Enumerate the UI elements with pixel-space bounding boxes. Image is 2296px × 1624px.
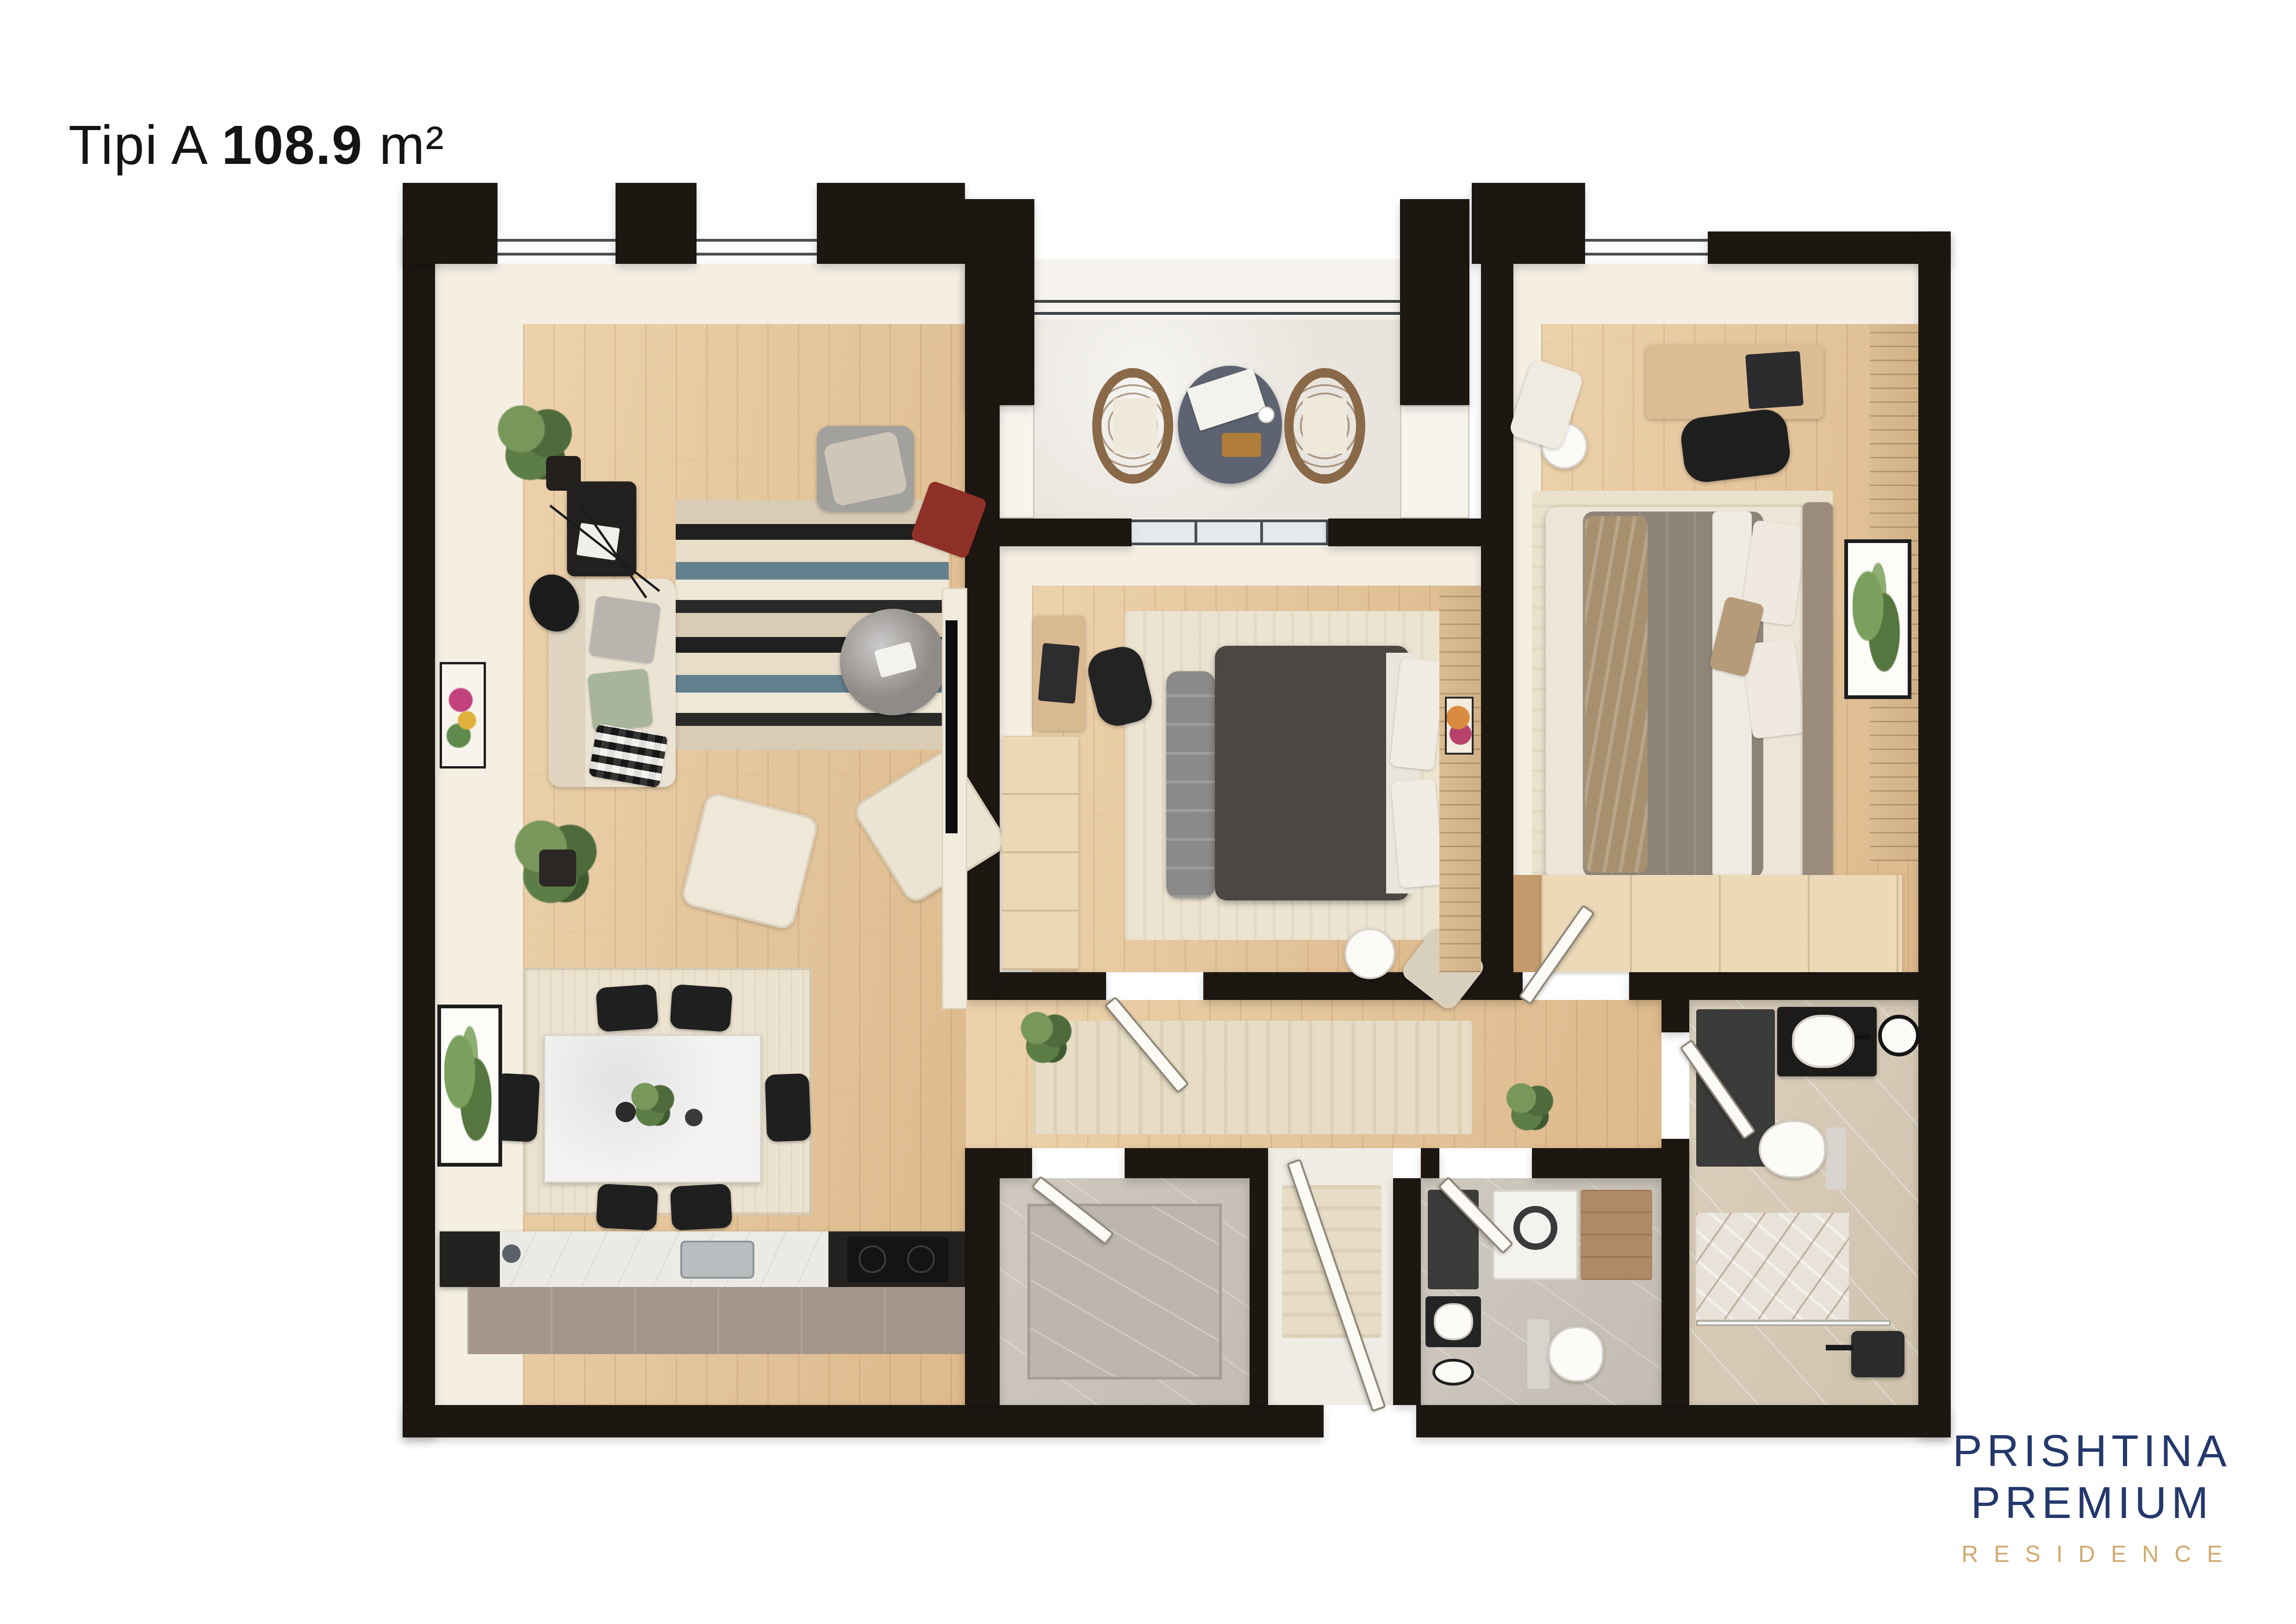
balcony-tray: [1222, 433, 1261, 457]
kitchen-sink: [680, 1241, 754, 1279]
wall-bedroom1-north-b: [1328, 518, 1481, 546]
balcony-railing: [1034, 300, 1400, 316]
sofa-pillow-gray: [589, 595, 661, 664]
kitchen-bottle: [502, 1244, 521, 1263]
bedroom1-slat-wall: [1439, 586, 1481, 972]
wall-top-block-2: [616, 183, 697, 264]
bedroom2-headboard: [1803, 502, 1833, 887]
kitchen-counter-marble: [500, 1231, 828, 1287]
wall-bedroom1-bedroom2: [1481, 264, 1513, 972]
wall-pantry-corridor: [1250, 1148, 1268, 1405]
shower-glass-screen: [1696, 1320, 1891, 1326]
title-unit: m²: [379, 114, 445, 175]
bath-sink: [1792, 1015, 1854, 1068]
brand-tagline: RESIDENCE: [1937, 1541, 2247, 1568]
wall-bedroom1-north-a: [1000, 518, 1132, 546]
wall-bedrooms-south-a: [1000, 972, 1106, 1000]
bedroom2-art-monstera: [1853, 553, 1904, 685]
wall-outer-left: [403, 231, 435, 1437]
balcony-pillar-right: [1400, 199, 1469, 405]
wall-hall-south-a: [1000, 1148, 1032, 1178]
bedroom1-small-art: [1445, 697, 1474, 755]
wall-living-bedroom1: [965, 264, 1000, 1000]
balcony-chair-left-cushion: [1113, 398, 1157, 454]
window-bedroom2: [1585, 231, 1708, 264]
brand-line-2: PREMIUM: [1937, 1477, 2247, 1529]
dining-vase-2: [685, 1109, 703, 1126]
wall-hall-south-b: [1125, 1148, 1250, 1178]
dining-chair-4: [670, 1184, 733, 1231]
brand-logo: PRISHTINA PREMIUM RESIDENCE: [1937, 1425, 2247, 1568]
wc-toilet-bowl: [1548, 1326, 1604, 1382]
wc-toilet-tank: [1527, 1319, 1549, 1389]
dining-chair-1: [596, 984, 659, 1032]
bedroom2-desk-chair: [1679, 407, 1792, 485]
glass-door-balcony-bedroom1: [1132, 519, 1328, 545]
cooktop-burner-2: [907, 1245, 935, 1273]
shower-head: [1851, 1331, 1904, 1377]
wall-top-block-4: [1472, 183, 1585, 264]
wall-hall-south-d: [1532, 1148, 1661, 1178]
wall-bedrooms-south-c: [1629, 972, 1918, 1000]
window-living-1: [498, 231, 616, 264]
bedroom1-laptop: [1038, 643, 1080, 704]
wall-corridor-wc: [1393, 1178, 1421, 1405]
living-wall-face-top: [523, 264, 965, 324]
bedroom2-sheet-fold: [1712, 512, 1752, 877]
bedroom1-wardrobe: [1002, 736, 1078, 970]
washing-machine-door: [1513, 1206, 1557, 1250]
balcony-parapet-right: [1400, 405, 1469, 518]
bath-faucet: [1855, 1035, 1871, 1039]
floorplan-sheet: Tipi A 108.9 m²: [0, 0, 2296, 1624]
dining-vase-1: [616, 1102, 636, 1122]
pantry-interior: [1027, 1204, 1222, 1380]
window-living-2: [697, 231, 817, 264]
kitchen-cabinets: [467, 1287, 965, 1354]
wall-bottom-left: [403, 1405, 1324, 1437]
hallway-runner-rug: [1032, 1021, 1472, 1134]
dining-centerpiece: [627, 1079, 678, 1130]
tv-screen: [946, 620, 958, 833]
balcony-coffee-cup: [1258, 406, 1275, 423]
bedroom2-laptop: [1745, 351, 1804, 409]
wall-outer-right: [1918, 231, 1951, 1437]
dining-chair-3: [596, 1184, 659, 1231]
bedroom1-wall-face-top: [1000, 546, 1481, 586]
bath-toilet-bowl: [1759, 1120, 1826, 1178]
wall-hall-south-c: [1421, 1148, 1439, 1178]
wall-wc-bath-b: [1661, 1139, 1689, 1405]
hallway-plant-2: [1502, 1079, 1557, 1134]
bath-mirror: [1878, 1015, 1920, 1056]
wall-top-right: [1708, 231, 1951, 264]
wall-bottom-right: [1416, 1405, 1951, 1437]
sofa-pillow-green: [587, 668, 653, 732]
page-title: Tipi A 108.9 m²: [68, 113, 445, 176]
plant-pot-bottom: [539, 849, 576, 887]
bedroom1-bed-duvet: [1215, 646, 1409, 900]
balcony-chair-right-cushion: [1303, 398, 1347, 454]
bedroom2-wardrobe: [1541, 875, 1902, 972]
wall-kitchen-side: [965, 1148, 1000, 1405]
bedroom1-side-table: [1344, 928, 1395, 979]
bedroom1-pillow-2: [1391, 778, 1444, 888]
wc-wood-cabinet: [1580, 1190, 1652, 1280]
wall-top-block-3: [817, 183, 965, 264]
title-area: 108.9: [222, 114, 363, 175]
dining-chair-2: [670, 984, 733, 1032]
wc-mirror: [1432, 1359, 1474, 1386]
bath-toilet-tank: [1826, 1127, 1846, 1190]
wall-art-living: [440, 662, 486, 768]
shower-marble-wall: [1696, 1213, 1849, 1319]
bedroom1-bench: [1166, 671, 1215, 898]
bedroom2-wall-face-top: [1513, 264, 1918, 324]
bedroom2-throw: [1585, 516, 1648, 873]
hallway-plant-1: [1016, 1007, 1076, 1067]
title-type: Tipi A: [68, 114, 205, 175]
dining-chair-6: [765, 1073, 811, 1142]
wall-wc-bath-a: [1661, 1000, 1689, 1032]
wall-top-block-1: [403, 183, 498, 264]
wall-art-dining-monstera: [444, 1016, 495, 1155]
wc-sink: [1434, 1303, 1473, 1340]
cooktop-burner-1: [859, 1245, 886, 1273]
brand-line-1: PRISHTINA: [1937, 1425, 2247, 1477]
shower-arm: [1826, 1345, 1854, 1350]
bedroom2-wardrobe-side: [1513, 875, 1541, 972]
